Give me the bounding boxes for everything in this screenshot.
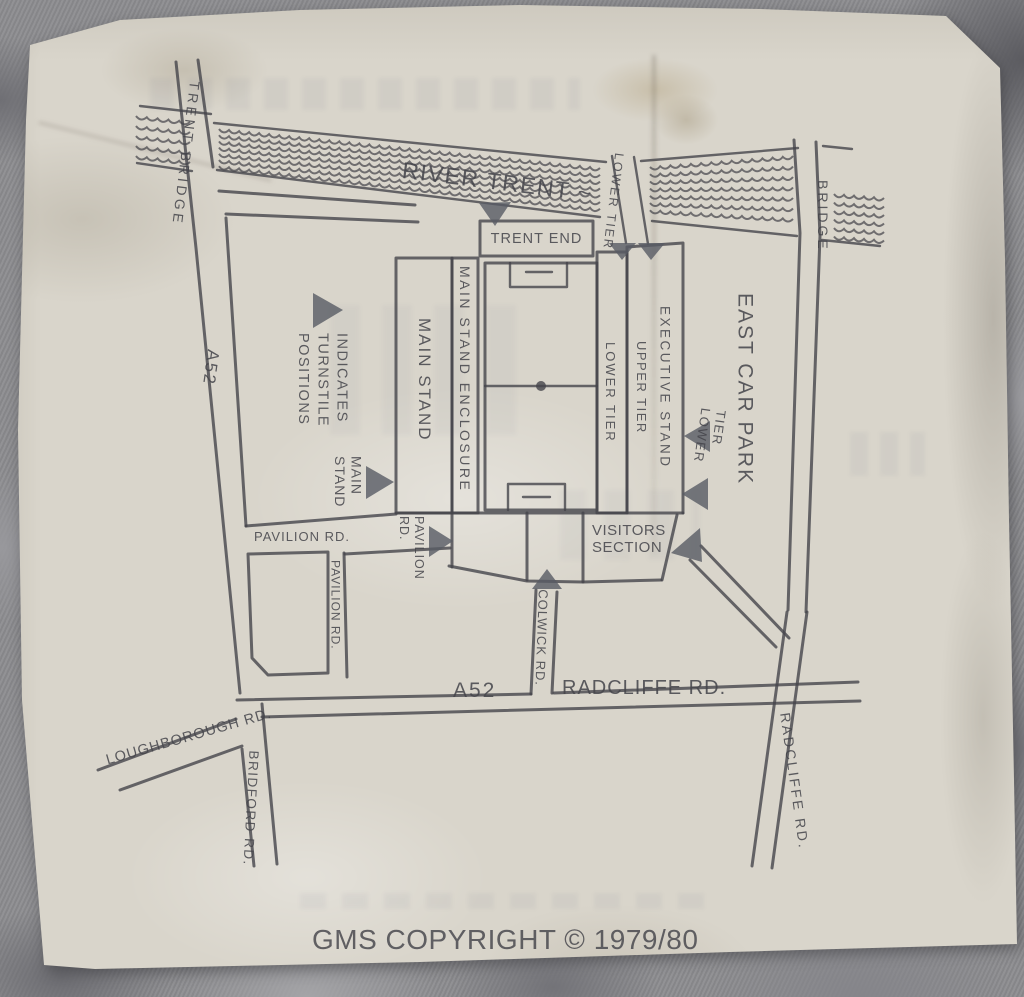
river-wave — [650, 167, 793, 177]
road-carpark-slip-edge — [690, 560, 776, 647]
river-wave — [650, 203, 793, 211]
road-bridford-edge — [262, 704, 277, 864]
river-wave — [834, 211, 884, 217]
river-walkway-edge — [634, 157, 648, 244]
road-pavilion-north-edge — [246, 514, 396, 526]
pitch-centre-spot — [536, 381, 546, 391]
map-svg — [0, 0, 1024, 997]
main-stand-label: MAIN STAND — [413, 318, 435, 442]
road-riverside-south-edge — [226, 214, 418, 222]
upper-tier-label: UPPER TIER — [632, 341, 649, 434]
turnstile-arrow-colwick — [532, 569, 562, 589]
road-a52-radcliffe-south-edge — [262, 701, 860, 717]
road-colwick-edge — [552, 592, 557, 693]
copyright-label: GMS COPYRIGHT © 1979/80 — [312, 922, 698, 958]
colwick-rd-label: COLWICK RD. — [531, 589, 551, 686]
south-sections-bottom — [449, 566, 661, 582]
road-riverside-north-edge — [219, 191, 415, 205]
bridge-road-label: BRIDGE — [814, 180, 832, 252]
road-a52-east-edge — [226, 218, 246, 526]
river-wave — [650, 196, 793, 201]
river-wave — [650, 177, 793, 184]
block-west-of-pavilion — [248, 552, 328, 675]
a52-south-label: A52 — [453, 677, 496, 704]
lower-tier-stand-label: LOWER TIER — [601, 342, 618, 443]
pavilion-rd-horizontal-label: PAVILION RD. — [254, 529, 350, 546]
river-wave — [650, 188, 793, 192]
pavilion-rd-stadium-label: PAVILION RD. — [396, 516, 426, 580]
main-stand-pointer-label: MAIN STAND — [331, 456, 365, 507]
legend-note-label: INDICATES TURNSTILE POSITIONS — [293, 333, 350, 427]
executive-stand-label: EXECUTIVE STAND — [656, 306, 674, 469]
river-wave — [834, 220, 884, 226]
river-edge — [652, 221, 797, 236]
turnstile-arrow-lower-tier-north-2 — [638, 243, 665, 260]
road-pavilion-east-edge — [344, 553, 347, 677]
east-car-park-label: EAST CAR PARK — [731, 293, 758, 485]
river-wave — [834, 194, 884, 200]
main-stand-enclosure-label: MAIN STAND ENCLOSURE — [456, 266, 474, 492]
river-edge — [823, 146, 852, 149]
trent-end-label: TRENT END — [480, 230, 593, 249]
turnstile-arrow-visitors — [671, 528, 702, 562]
turnstile-arrow-pavilion — [429, 526, 453, 557]
pitch-penalty-box-north — [510, 263, 567, 287]
river-wave — [834, 228, 884, 234]
legend-example-arrow — [313, 293, 343, 328]
pavilion-rd-vertical-label: PAVILION RD. — [327, 560, 343, 650]
river-wave — [650, 210, 793, 221]
river-wave — [834, 203, 884, 209]
turnstile-arrow-main-stand — [366, 466, 394, 499]
road-carpark-slip-edge — [701, 546, 789, 638]
visitors-section-label: VISITORS SECTION — [592, 522, 666, 557]
radcliffe-rd-south-label: RADCLIFFE RD. — [562, 675, 726, 701]
turnstile-arrow-east-stand — [682, 478, 708, 510]
